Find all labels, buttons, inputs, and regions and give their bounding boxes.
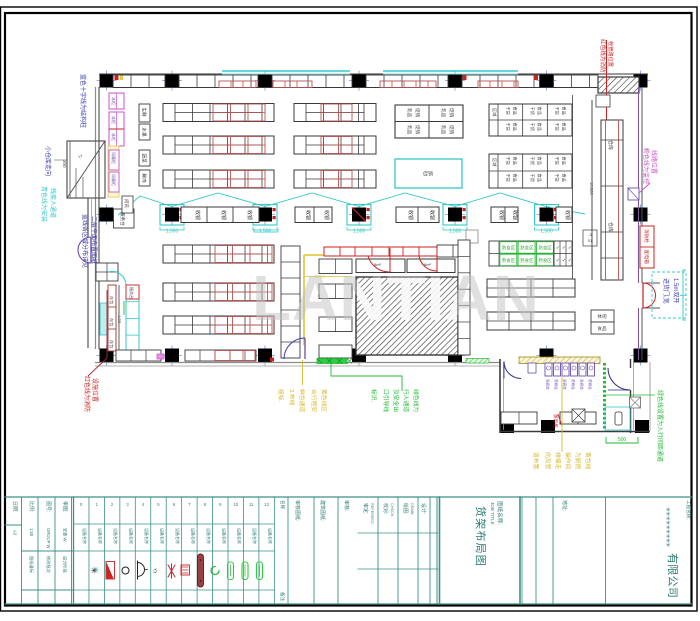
svg-text:洗碗台: 洗碗台 xyxy=(580,379,585,390)
svg-text:1,500: 1,500 xyxy=(449,229,462,235)
svg-text:干货: 干货 xyxy=(554,123,561,131)
svg-text:干货: 干货 xyxy=(504,107,511,115)
svg-text:18,000: 18,000 xyxy=(589,182,594,195)
svg-text:食品: 食品 xyxy=(561,123,568,131)
svg-text:GROUP W: GROUP W xyxy=(46,528,51,548)
svg-text:标识.: 标识. xyxy=(370,389,378,403)
svg-text:收银: 收银 xyxy=(323,210,330,220)
svg-text:收银: 收银 xyxy=(564,210,571,220)
svg-text:组标.: 组标. xyxy=(277,389,285,403)
svg-text:区域: 区域 xyxy=(492,108,498,117)
svg-text:乳品: 乳品 xyxy=(440,108,447,118)
svg-text:排烟走: 排烟走 xyxy=(554,452,562,470)
svg-text:绘图:: 绘图: xyxy=(402,503,409,514)
svg-text:图号:: 图号: xyxy=(45,501,51,512)
svg-text:建筑图纸:: 建筑图纸: xyxy=(319,500,326,521)
svg-text:风幕柜: 风幕柜 xyxy=(111,152,117,164)
svg-text:洗碗台: 洗碗台 xyxy=(546,379,551,390)
svg-text:向及管: 向及管 xyxy=(544,452,552,470)
svg-text:青色线为安装: 青色线为安装 xyxy=(40,186,48,222)
svg-text:熟食区: 熟食区 xyxy=(539,257,553,264)
svg-text:REFEREED: REFEREED xyxy=(370,503,374,524)
svg-text:食品: 食品 xyxy=(536,107,543,115)
svg-text:消防栓: 消防栓 xyxy=(643,229,650,243)
svg-text:1,500: 1,500 xyxy=(259,229,272,235)
svg-text:A3: A3 xyxy=(13,530,18,536)
svg-text:设施位置: 设施位置 xyxy=(91,378,99,402)
svg-text:收银: 收银 xyxy=(194,210,201,220)
svg-text:乳品: 乳品 xyxy=(440,125,447,135)
svg-text:✓: ✓ xyxy=(562,245,566,250)
svg-text:干货: 干货 xyxy=(504,123,511,131)
svg-text:收银: 收银 xyxy=(512,210,519,220)
svg-text:1.03: 1.03 xyxy=(117,315,122,324)
svg-text:生鲜: 生鲜 xyxy=(141,108,148,118)
svg-text:✳✳✳✳✳✳✳✳✳: ✳✳✳✳✳✳✳✳✳ xyxy=(664,507,671,547)
svg-text:✓: ✓ xyxy=(568,258,572,263)
svg-text:收银: 收银 xyxy=(407,210,414,220)
svg-text:日期:: 日期: xyxy=(12,501,18,512)
svg-text:黄色线: 黄色线 xyxy=(584,452,592,470)
svg-text:审图:: 审图: xyxy=(62,501,69,512)
svg-text:食品: 食品 xyxy=(511,107,518,115)
svg-text:设备名称: 设备名称 xyxy=(113,528,119,544)
svg-text:区域: 区域 xyxy=(492,158,498,167)
svg-text:仓库: 仓库 xyxy=(607,140,614,150)
svg-text:促销: 促销 xyxy=(414,108,421,118)
svg-text:1.5m双开: 1.5m双开 xyxy=(672,278,679,303)
svg-text:口引导线: 口引导线 xyxy=(382,389,390,412)
svg-text:收银: 收银 xyxy=(498,210,505,220)
svg-text:干货: 干货 xyxy=(554,157,561,165)
svg-text:设备名称: 设备名称 xyxy=(237,528,243,544)
svg-text:设备名称: 设备名称 xyxy=(82,528,88,544)
svg-text:线路位置: 线路位置 xyxy=(650,150,658,174)
svg-text:DRAW: DRAW xyxy=(410,503,414,515)
svg-text:仓库: 仓库 xyxy=(607,222,614,232)
svg-text:有限公司: 有限公司 xyxy=(666,553,680,598)
svg-text:鲜肉: 鲜肉 xyxy=(141,174,148,184)
svg-text:食品: 食品 xyxy=(536,174,543,182)
svg-text:设备名称: 设备名称 xyxy=(190,528,196,544)
svg-text:鲜色通道: 鲜色通道 xyxy=(298,389,306,412)
svg-text:蓝色十字线为结构柱: 蓝色十字线为结构柱 xyxy=(79,74,87,128)
svg-text:设备名称: 设备名称 xyxy=(129,528,135,544)
svg-text:二层平面布置图纸: 二层平面布置图纸 xyxy=(90,216,98,264)
svg-text:比例:: 比例: xyxy=(28,501,35,512)
svg-text:3.布线: 3.布线 xyxy=(288,389,296,406)
svg-text:ර: ර xyxy=(153,568,157,575)
svg-text:名称: 名称 xyxy=(279,500,286,510)
svg-text:✓: ✓ xyxy=(556,245,560,250)
svg-text:促销: 促销 xyxy=(423,171,433,178)
svg-text:洗碗台: 洗碗台 xyxy=(588,379,593,390)
svg-text:操作间: 操作间 xyxy=(564,452,572,470)
svg-text:设备名称: 设备名称 xyxy=(206,528,212,544)
svg-text:修改批次: 修改批次 xyxy=(45,556,52,574)
svg-text:审定:: 审定: xyxy=(362,503,369,514)
svg-text:1:50: 1:50 xyxy=(29,528,34,537)
svg-text:食品: 食品 xyxy=(536,157,543,165)
svg-text:干货: 干货 xyxy=(554,174,561,182)
svg-text:干货: 干货 xyxy=(529,174,536,182)
svg-text:粉色线为监控: 粉色线为监控 xyxy=(642,148,650,184)
svg-text:设备名称: 设备名称 xyxy=(268,528,274,544)
svg-text:备注: 备注 xyxy=(279,592,286,602)
svg-text:审核:: 审核: xyxy=(343,500,350,511)
svg-text:图纸名称:: 图纸名称: xyxy=(496,501,504,525)
svg-text:干货: 干货 xyxy=(529,107,536,115)
svg-text:风幕柜: 风幕柜 xyxy=(111,174,117,186)
svg-text:10: 10 xyxy=(233,502,238,507)
svg-text:食品: 食品 xyxy=(561,174,568,182)
svg-text:12: 12 xyxy=(264,502,269,507)
svg-text:食品: 食品 xyxy=(561,157,568,165)
svg-text:黄色线区: 黄色线区 xyxy=(320,389,328,412)
svg-text:干货: 干货 xyxy=(504,174,511,182)
svg-text:蔬菜: 蔬菜 xyxy=(141,154,148,164)
svg-text:CHECK: CHECK xyxy=(390,503,394,517)
svg-text:为厨房: 为厨房 xyxy=(574,452,582,470)
svg-text:合行程安: 合行程安 xyxy=(310,389,318,412)
svg-text:食品: 食品 xyxy=(511,157,518,165)
svg-text:✓: ✓ xyxy=(556,258,560,263)
svg-text:JOB TITLE: JOB TITLE xyxy=(490,502,495,525)
svg-text:蒸饭柜: 蒸饭柜 xyxy=(552,414,559,428)
svg-text:校对:: 校对: xyxy=(382,503,389,514)
svg-text:乳品: 乳品 xyxy=(406,108,413,118)
svg-text:行人通道: 行人通道 xyxy=(402,389,410,412)
svg-text:工程名称:: 工程名称: xyxy=(685,500,692,520)
svg-text:红色线为消防: 红色线为消防 xyxy=(599,39,607,73)
svg-text:收银: 收银 xyxy=(305,210,312,220)
svg-text:小仓库走向: 小仓库走向 xyxy=(44,146,52,176)
svg-text:✳: ✳ xyxy=(90,566,98,576)
svg-text:冰柜: 冰柜 xyxy=(111,133,117,141)
svg-text:冰柜: 冰柜 xyxy=(111,116,117,124)
svg-text:食品: 食品 xyxy=(561,107,568,115)
svg-text:存包: 存包 xyxy=(109,318,115,327)
svg-text:干货: 干货 xyxy=(554,107,561,115)
svg-text:图纸漫标: 图纸漫标 xyxy=(28,556,35,573)
svg-text:干货: 干货 xyxy=(529,157,536,165)
svg-text:存包: 存包 xyxy=(109,296,115,305)
svg-text:配电箱: 配电箱 xyxy=(643,250,650,264)
svg-text:食品: 食品 xyxy=(597,325,607,332)
svg-text:收银: 收银 xyxy=(246,210,253,220)
svg-text:干货: 干货 xyxy=(529,123,536,131)
svg-text:洗碗台: 洗碗台 xyxy=(563,379,568,390)
svg-text:11: 11 xyxy=(249,502,254,507)
svg-text:设计:: 设计: xyxy=(420,503,427,514)
svg-text:设备名称: 设备名称 xyxy=(221,528,227,544)
svg-text:红色线为消防: 红色线为消防 xyxy=(83,376,91,412)
svg-text:熟食区: 熟食区 xyxy=(539,245,553,252)
svg-text:食品: 食品 xyxy=(511,174,518,182)
svg-text:收银: 收银 xyxy=(429,210,436,220)
svg-text:设备名称: 设备名称 xyxy=(159,528,165,544)
svg-text:道布置.: 道布置. xyxy=(532,452,540,471)
svg-text:栓管路位置: 栓管路位置 xyxy=(607,41,615,67)
svg-text:熟食区: 熟食区 xyxy=(520,245,534,252)
svg-text:收银: 收银 xyxy=(220,210,227,220)
svg-text:地址:: 地址: xyxy=(561,500,568,511)
svg-text:1,500: 1,500 xyxy=(353,229,366,235)
svg-text:残疾人通道: 残疾人通道 xyxy=(49,188,57,218)
svg-text:设备名称: 设备名称 xyxy=(252,528,258,544)
svg-text:问讯: 问讯 xyxy=(123,199,130,208)
svg-text:安委 W: 安委 W xyxy=(62,528,69,542)
svg-text:蓝线各区域分布详见: 蓝线各区域分布详见 xyxy=(81,214,89,268)
svg-text:促销: 促销 xyxy=(448,108,455,118)
svg-text:设备名称: 设备名称 xyxy=(175,528,181,544)
svg-text:水果: 水果 xyxy=(141,128,148,138)
svg-text:洗碗台: 洗碗台 xyxy=(554,379,559,390)
svg-text:干货: 干货 xyxy=(504,157,511,165)
svg-text:进货门,宽: 进货门,宽 xyxy=(662,278,670,304)
svg-text:1,500: 1,500 xyxy=(166,229,179,235)
svg-text:乳品: 乳品 xyxy=(406,125,413,135)
svg-text:服务台: 服务台 xyxy=(119,212,126,226)
svg-text:货架布局图: 货架布局图 xyxy=(474,506,488,567)
svg-text:500: 500 xyxy=(618,437,627,443)
svg-text:食品: 食品 xyxy=(511,123,518,131)
svg-text:✓: ✓ xyxy=(568,245,572,250)
svg-text:冰柜: 冰柜 xyxy=(111,97,117,105)
svg-text:服务台: 服务台 xyxy=(129,287,135,299)
svg-text:设备名称: 设备名称 xyxy=(98,528,104,544)
svg-text:熟食区: 熟食区 xyxy=(502,245,516,252)
svg-text:洗碗台: 洗碗台 xyxy=(571,379,576,390)
svg-text:✓: ✓ xyxy=(562,258,566,263)
svg-text:设备名称: 设备名称 xyxy=(144,528,150,544)
svg-text:存包: 存包 xyxy=(109,340,115,349)
svg-text:审核图纸:: 审核图纸: xyxy=(294,500,301,521)
svg-text:绿色线为: 绿色线为 xyxy=(412,389,420,412)
svg-text:促销: 促销 xyxy=(414,125,421,135)
svg-text:及安全出: 及安全出 xyxy=(392,389,400,412)
svg-text:休闲: 休闲 xyxy=(597,313,607,320)
svg-text:1,500: 1,500 xyxy=(540,229,553,235)
svg-text:食品: 食品 xyxy=(536,123,543,131)
svg-text:促销: 促销 xyxy=(448,125,455,135)
svg-text:300: 300 xyxy=(62,160,67,168)
svg-text:绿色线设置为入行间距通道: 绿色线设置为入行间距通道 xyxy=(656,390,664,462)
svg-text:设计阶段: 设计阶段 xyxy=(62,556,69,574)
